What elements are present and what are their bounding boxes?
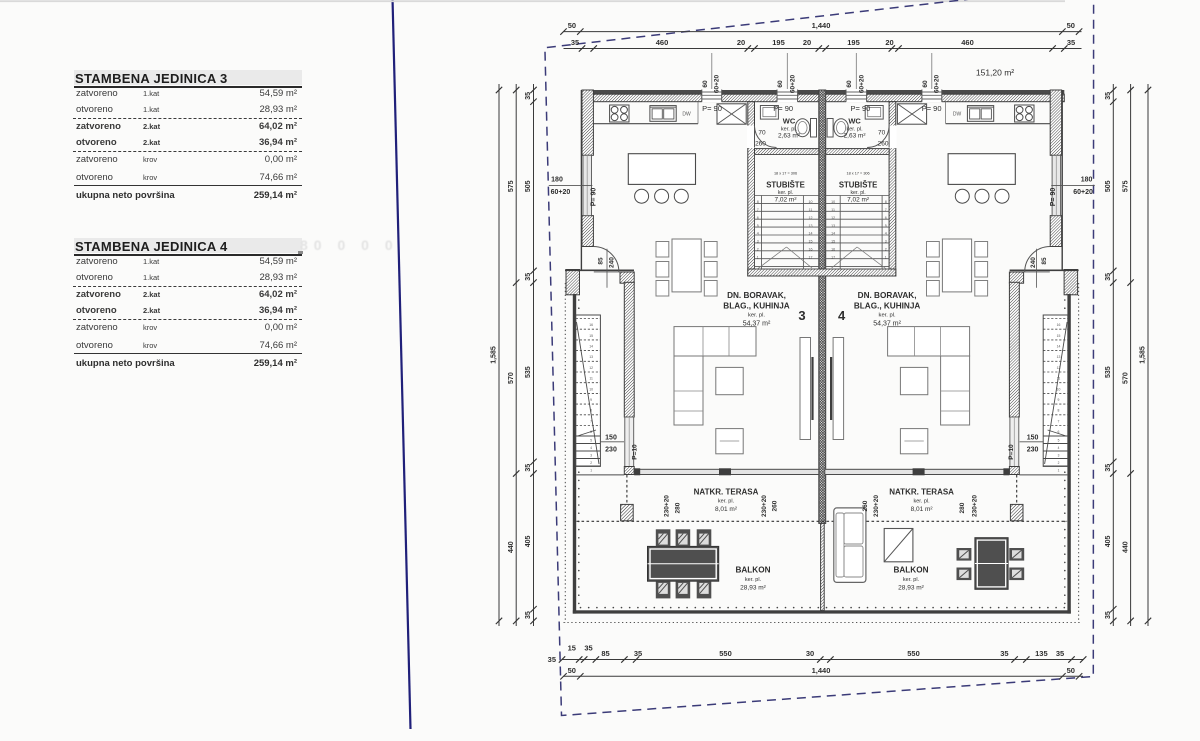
svg-text:15: 15 [831, 240, 835, 244]
svg-text:35: 35 [1105, 273, 1112, 281]
svg-text:9: 9 [590, 398, 592, 402]
svg-text:14: 14 [1057, 345, 1061, 349]
svg-text:16: 16 [831, 248, 835, 252]
svg-text:260: 260 [862, 500, 869, 511]
svg-text:4: 4 [1058, 446, 1060, 450]
svg-text:P=10: P=10 [1008, 444, 1015, 460]
svg-text:35: 35 [525, 464, 532, 472]
svg-text:18 x 17 = 306: 18 x 17 = 306 [774, 171, 797, 175]
svg-text:2: 2 [590, 461, 592, 465]
svg-text:35: 35 [584, 644, 592, 653]
svg-text:7: 7 [757, 208, 759, 212]
svg-text:28,93 m²: 28,93 m² [898, 584, 924, 591]
svg-text:ker. pl.: ker. pl. [850, 190, 865, 196]
svg-text:15: 15 [568, 644, 576, 653]
svg-text:20: 20 [803, 38, 811, 47]
svg-text:BLAG., KUHINJA: BLAG., KUHINJA [723, 301, 789, 310]
svg-text:260: 260 [878, 141, 889, 148]
svg-text:8: 8 [1058, 409, 1060, 413]
svg-text:60+20: 60+20 [858, 74, 865, 93]
svg-text:70: 70 [758, 129, 766, 136]
svg-text:1: 1 [1058, 469, 1060, 473]
svg-text:230+20: 230+20 [873, 495, 880, 517]
svg-text:230: 230 [605, 446, 617, 453]
svg-text:16: 16 [589, 323, 593, 327]
svg-text:P= 90: P= 90 [773, 104, 793, 113]
svg-text:575: 575 [1122, 180, 1129, 192]
svg-text:DN. BORAVAK,: DN. BORAVAK, [858, 291, 917, 300]
svg-text:10: 10 [831, 200, 835, 204]
svg-text:14: 14 [589, 345, 593, 349]
svg-text:35: 35 [1105, 464, 1112, 472]
svg-text:18 x 17 = 306: 18 x 17 = 306 [847, 171, 870, 175]
svg-text:8,01 m²: 8,01 m² [911, 506, 934, 513]
svg-text:460: 460 [656, 38, 669, 47]
svg-text:10: 10 [809, 200, 813, 204]
svg-text:85: 85 [1041, 257, 1048, 265]
svg-text:ker. pl.: ker. pl. [748, 313, 765, 319]
svg-text:2: 2 [885, 248, 887, 252]
svg-text:70: 70 [878, 129, 886, 136]
svg-text:460: 460 [961, 38, 974, 47]
svg-text:7,02 m²: 7,02 m² [774, 196, 797, 203]
svg-text:1: 1 [757, 255, 759, 259]
svg-text:P= 90: P= 90 [1050, 188, 1057, 207]
svg-text:230+20: 230+20 [972, 495, 979, 517]
svg-text:4: 4 [757, 232, 759, 236]
svg-text:ker. pl.: ker. pl. [745, 577, 762, 583]
svg-text:16: 16 [1057, 323, 1061, 327]
svg-text:535: 535 [525, 366, 532, 378]
svg-text:ker. pl.: ker. pl. [879, 313, 896, 319]
svg-text:230+20: 230+20 [664, 495, 671, 517]
svg-text:14: 14 [809, 232, 813, 236]
svg-text:13: 13 [1057, 355, 1061, 359]
svg-text:4: 4 [838, 308, 846, 323]
svg-text:50: 50 [1067, 666, 1075, 675]
svg-text:1,585: 1,585 [491, 346, 498, 364]
svg-text:570: 570 [1122, 372, 1129, 384]
svg-text:13: 13 [589, 355, 593, 359]
svg-text:60: 60 [777, 80, 784, 88]
svg-text:54,37 m²: 54,37 m² [743, 320, 771, 327]
svg-text:60: 60 [846, 80, 853, 88]
svg-text:BALKON: BALKON [735, 566, 770, 575]
svg-text:11: 11 [809, 208, 813, 212]
svg-text:5: 5 [590, 439, 592, 443]
svg-text:P= 90: P= 90 [850, 104, 870, 113]
svg-text:405: 405 [525, 535, 532, 547]
svg-text:5: 5 [757, 224, 759, 228]
svg-text:DN. BORAVAK,: DN. BORAVAK, [727, 291, 786, 300]
svg-text:150: 150 [605, 434, 617, 441]
svg-text:DW: DW [682, 112, 691, 118]
svg-text:3: 3 [757, 240, 759, 244]
svg-text:8,01 m²: 8,01 m² [715, 506, 738, 513]
svg-text:WC: WC [783, 117, 796, 126]
svg-text:ker. pl.: ker. pl. [903, 577, 920, 583]
svg-text:12: 12 [809, 216, 813, 220]
svg-text:60+20: 60+20 [934, 74, 941, 93]
svg-text:P=10: P=10 [632, 444, 639, 460]
svg-text:WC: WC [848, 117, 861, 126]
svg-text:230: 230 [1027, 446, 1039, 453]
svg-text:5: 5 [1058, 439, 1060, 443]
svg-text:60+20: 60+20 [714, 74, 721, 93]
svg-text:60+20: 60+20 [1073, 189, 1093, 196]
svg-text:3: 3 [590, 454, 592, 458]
svg-text:17: 17 [831, 255, 835, 259]
svg-text:35: 35 [525, 611, 532, 619]
svg-text:P= 90: P= 90 [922, 104, 942, 113]
svg-text:STUBIŠTE: STUBIŠTE [839, 180, 878, 189]
svg-text:11: 11 [831, 208, 835, 212]
svg-text:7,02 m²: 7,02 m² [847, 196, 870, 203]
svg-text:35: 35 [525, 273, 532, 281]
svg-text:135: 135 [1035, 649, 1048, 658]
svg-text:6: 6 [885, 216, 887, 220]
svg-text:440: 440 [508, 541, 515, 553]
svg-text:405: 405 [1105, 535, 1112, 547]
svg-text:50: 50 [568, 666, 576, 675]
svg-text:240: 240 [1030, 257, 1037, 268]
svg-text:10: 10 [1057, 387, 1061, 391]
svg-text:260: 260 [772, 500, 779, 511]
svg-text:50: 50 [1067, 21, 1075, 30]
svg-text:60: 60 [922, 80, 929, 88]
svg-text:1,440: 1,440 [812, 21, 831, 30]
svg-text:5: 5 [885, 224, 887, 228]
svg-text:1: 1 [590, 469, 592, 473]
svg-text:2: 2 [757, 248, 759, 252]
svg-text:180: 180 [551, 176, 563, 183]
svg-text:STUBIŠTE: STUBIŠTE [766, 180, 805, 189]
svg-text:180: 180 [1081, 176, 1093, 183]
svg-text:151,20 m²: 151,20 m² [976, 68, 1014, 78]
svg-text:1: 1 [885, 255, 887, 259]
svg-text:35: 35 [548, 655, 556, 664]
svg-text:2,63 m²: 2,63 m² [778, 132, 801, 139]
svg-text:P= 90: P= 90 [702, 104, 722, 113]
svg-text:280: 280 [959, 502, 966, 513]
svg-text:8: 8 [757, 200, 759, 204]
svg-text:35: 35 [571, 38, 579, 47]
svg-text:50: 50 [568, 21, 576, 30]
svg-text:570: 570 [508, 372, 515, 384]
svg-text:35: 35 [1067, 38, 1075, 47]
svg-text:13: 13 [809, 224, 813, 228]
svg-text:8: 8 [885, 200, 887, 204]
svg-text:440: 440 [1122, 541, 1129, 553]
svg-text:505: 505 [1105, 180, 1112, 192]
svg-text:20: 20 [885, 38, 893, 47]
svg-text:28,93 m²: 28,93 m² [740, 584, 766, 591]
svg-text:9: 9 [1058, 398, 1060, 402]
svg-text:60: 60 [702, 80, 709, 88]
svg-text:NATKR. TERASA: NATKR. TERASA [694, 488, 759, 497]
svg-text:10: 10 [589, 387, 593, 391]
svg-text:12: 12 [831, 216, 835, 220]
svg-text:35: 35 [1105, 92, 1112, 100]
svg-text:15: 15 [589, 334, 593, 338]
svg-text:BALKON: BALKON [893, 566, 928, 575]
svg-text:1,585: 1,585 [1140, 346, 1147, 364]
svg-text:DW: DW [953, 112, 962, 118]
svg-text:195: 195 [772, 38, 785, 47]
svg-text:35: 35 [525, 92, 532, 100]
svg-text:P= 90: P= 90 [591, 188, 598, 207]
svg-text:35: 35 [1105, 611, 1112, 619]
svg-text:35: 35 [1056, 649, 1064, 658]
svg-text:2,63 m²: 2,63 m² [844, 132, 867, 139]
svg-text:85: 85 [598, 257, 605, 265]
svg-text:ker. pl.: ker. pl. [718, 499, 735, 505]
svg-text:ker. pl.: ker. pl. [778, 190, 793, 196]
svg-text:13: 13 [831, 224, 835, 228]
svg-text:7: 7 [1058, 419, 1060, 423]
svg-text:535: 535 [1105, 366, 1112, 378]
svg-text:16: 16 [809, 248, 813, 252]
svg-text:550: 550 [719, 649, 732, 658]
svg-text:ker. pl.: ker. pl. [913, 499, 930, 505]
svg-text:3: 3 [1058, 454, 1060, 458]
svg-text:505: 505 [525, 180, 532, 192]
svg-text:BLAG., KUHINJA: BLAG., KUHINJA [854, 301, 920, 310]
svg-text:4: 4 [885, 232, 887, 236]
svg-text:240: 240 [609, 257, 616, 268]
svg-text:60+20: 60+20 [551, 189, 571, 196]
svg-text:230+20: 230+20 [761, 495, 768, 517]
svg-text:NATKR. TERASA: NATKR. TERASA [889, 488, 954, 497]
svg-text:11: 11 [589, 377, 593, 381]
svg-text:150: 150 [1027, 434, 1039, 441]
svg-text:195: 195 [847, 38, 860, 47]
svg-text:6: 6 [757, 216, 759, 220]
svg-text:20: 20 [737, 38, 745, 47]
svg-text:3: 3 [885, 240, 887, 244]
svg-text:60+20: 60+20 [789, 74, 796, 93]
svg-text:85: 85 [601, 649, 609, 658]
svg-text:35: 35 [1000, 649, 1008, 658]
svg-text:4: 4 [590, 446, 592, 450]
svg-text:550: 550 [907, 649, 920, 658]
svg-text:35: 35 [634, 649, 642, 658]
svg-text:14: 14 [831, 232, 835, 236]
svg-text:1,440: 1,440 [812, 666, 831, 675]
svg-text:575: 575 [508, 180, 515, 192]
svg-text:2: 2 [1058, 461, 1060, 465]
svg-text:280: 280 [675, 502, 682, 513]
svg-text:15: 15 [1057, 334, 1061, 338]
svg-text:15: 15 [809, 240, 813, 244]
svg-text:54,37 m²: 54,37 m² [873, 320, 901, 327]
svg-text:12: 12 [589, 366, 593, 370]
svg-text:3: 3 [798, 308, 805, 323]
svg-text:17: 17 [809, 255, 813, 259]
svg-text:260: 260 [755, 141, 766, 148]
svg-text:7: 7 [885, 208, 887, 212]
svg-text:30: 30 [806, 649, 814, 658]
